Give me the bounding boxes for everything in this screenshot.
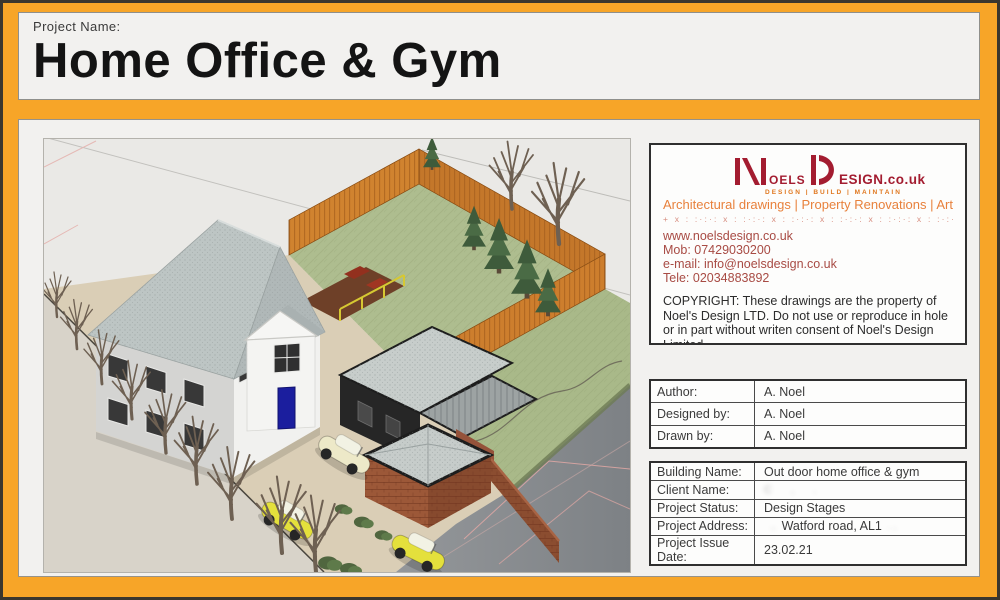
redacted-house-number: ., — [770, 521, 776, 532]
title-block-column: OELS ESIGN.co.uk DESIGN | BUILD | MAINTA… — [649, 143, 967, 567]
row-label: Project Issue Date: — [651, 536, 755, 564]
table-row: Project Status: Design Stages — [651, 500, 965, 518]
table-row: Project Address: .,Watford road, AL1. , — [651, 518, 965, 536]
page-title: Home Office & Gym — [33, 35, 979, 87]
logo-subtitle: DESIGN | BUILD | MAINTAIN — [765, 189, 902, 195]
table-row: Client Name: C , . — [651, 481, 965, 499]
row-label: Author: — [651, 381, 755, 402]
row-value: Design Stages — [755, 501, 965, 515]
redacted-postcode: . , — [888, 521, 896, 532]
row-value: Out door home office & gym — [755, 465, 965, 479]
sheet-body: OELS ESIGN.co.uk DESIGN | BUILD | MAINTA… — [18, 119, 980, 577]
credits-table: Author: A. Noel Designed by: A. Noel Dra… — [649, 379, 967, 449]
logo-text-oels: OELS — [769, 173, 806, 187]
mobile-number: Mob: 07429030200 — [663, 243, 953, 257]
address-text: Watford road, AL1 — [782, 519, 882, 533]
row-label: Building Name: — [651, 463, 755, 480]
row-label: Client Name: — [651, 481, 755, 498]
divider-glyphs: + x : :·:·: x : :·:·: x : :·:·: x : :·:·… — [663, 214, 953, 224]
drawing-sheet: { "page": { "frame_color": "#F7A528", "p… — [0, 0, 1000, 600]
company-logo: OELS ESIGN.co.uk DESIGN | BUILD | MAINTA… — [663, 153, 953, 195]
brand-tagline: Architectural drawings | Property Renova… — [663, 197, 953, 212]
telephone-number: Tele: 02034883892 — [663, 271, 953, 285]
table-row: Designed by: A. Noel — [651, 403, 965, 425]
website-link[interactable]: www.noelsdesign.co.uk — [663, 229, 953, 243]
row-value: A. Noel — [755, 429, 965, 443]
table-row: Author: A. Noel — [651, 381, 965, 403]
copyright-notice: COPYRIGHT: These drawings are the proper… — [663, 294, 953, 345]
row-value: 23.02.21 — [755, 543, 965, 557]
table-row: Drawn by: A. Noel — [651, 426, 965, 447]
row-label: Designed by: — [651, 403, 755, 424]
redacted-client-name: C , . — [764, 484, 824, 496]
site-render-svg — [44, 139, 630, 572]
row-label: Project Address: — [651, 518, 755, 535]
project-table: Building Name: Out door home office & gy… — [649, 461, 967, 566]
project-name-label: Project Name: — [33, 19, 979, 34]
row-value-redacted: C , . — [755, 484, 965, 496]
row-label: Drawn by: — [651, 426, 755, 447]
email-link[interactable]: e-mail: info@noelsdesign.co.uk — [663, 257, 953, 271]
row-label: Project Status: — [651, 500, 755, 517]
logo-text-esign: ESIGN.co.uk — [839, 172, 926, 187]
title-block-header: Project Name: Home Office & Gym — [18, 12, 980, 100]
row-value: A. Noel — [755, 385, 965, 399]
brand-box: OELS ESIGN.co.uk DESIGN | BUILD | MAINTA… — [649, 143, 967, 345]
table-row: Building Name: Out door home office & gy… — [651, 463, 965, 481]
contact-block: www.noelsdesign.co.uk Mob: 07429030200 e… — [663, 229, 953, 285]
row-value: .,Watford road, AL1. , — [755, 519, 965, 533]
site-render — [43, 138, 631, 573]
table-row: Project Issue Date: 23.02.21 — [651, 536, 965, 564]
row-value: A. Noel — [755, 407, 965, 421]
noels-design-logo-icon: OELS ESIGN.co.uk DESIGN | BUILD | MAINTA… — [735, 153, 953, 195]
